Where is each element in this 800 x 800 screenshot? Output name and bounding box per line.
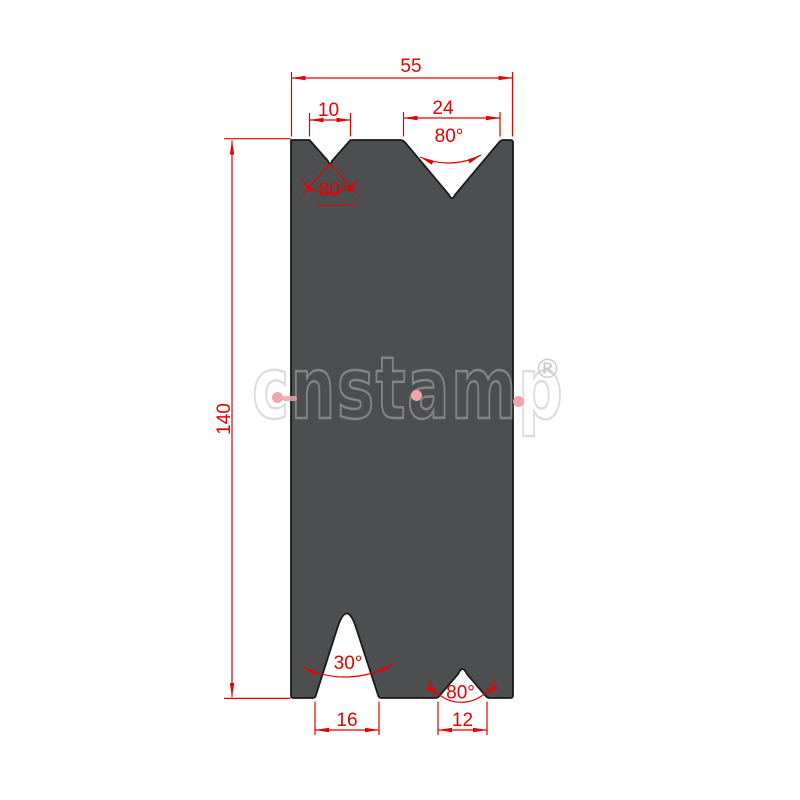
- dim-label-topleft-width: 10: [318, 100, 339, 121]
- die-block: [291, 140, 513, 698]
- dim-label-topright-angle: 80°: [435, 126, 464, 147]
- dim-label-bottomright-angle: 80°: [446, 683, 475, 704]
- dim-label-topright-width: 24: [432, 98, 454, 119]
- dim-label-topleft-angle: 80°: [319, 180, 348, 201]
- die-drawing: 55 10 24 80° 80° 140 30° 80° 16 12: [0, 0, 800, 800]
- dim-label-top-width: 55: [400, 56, 421, 77]
- angle-arc-topright: [420, 155, 481, 163]
- dim-label-bottomleft-angle: 30°: [334, 653, 363, 674]
- dim-label-height: 140: [214, 403, 235, 435]
- dim-label-bottomright-width: 12: [452, 710, 473, 731]
- dim-label-bottomleft-width: 16: [336, 710, 357, 731]
- drawing-canvas: 55 10 24 80° 80° 140 30° 80° 16 12 cnsta…: [0, 0, 800, 800]
